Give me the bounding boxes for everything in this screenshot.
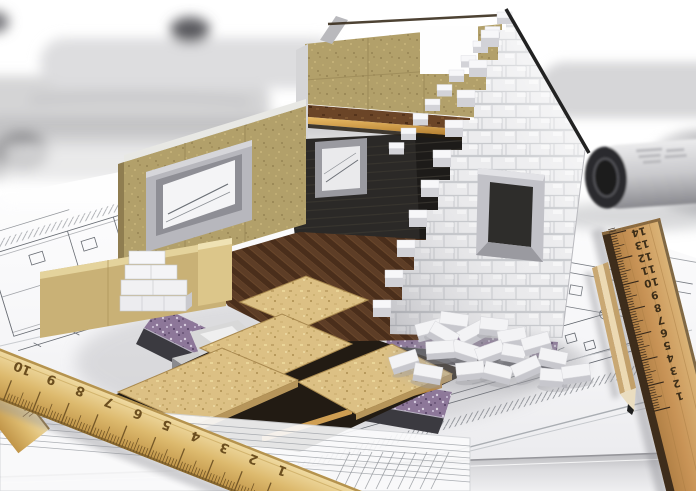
right-window	[476, 168, 545, 262]
scene-canvas: 10987654321 1234567891011121314	[0, 0, 696, 491]
brick	[424, 340, 458, 365]
brick	[453, 360, 487, 386]
back-window	[315, 138, 367, 198]
scene-3d-render: 10987654321 1234567891011121314	[0, 0, 696, 491]
